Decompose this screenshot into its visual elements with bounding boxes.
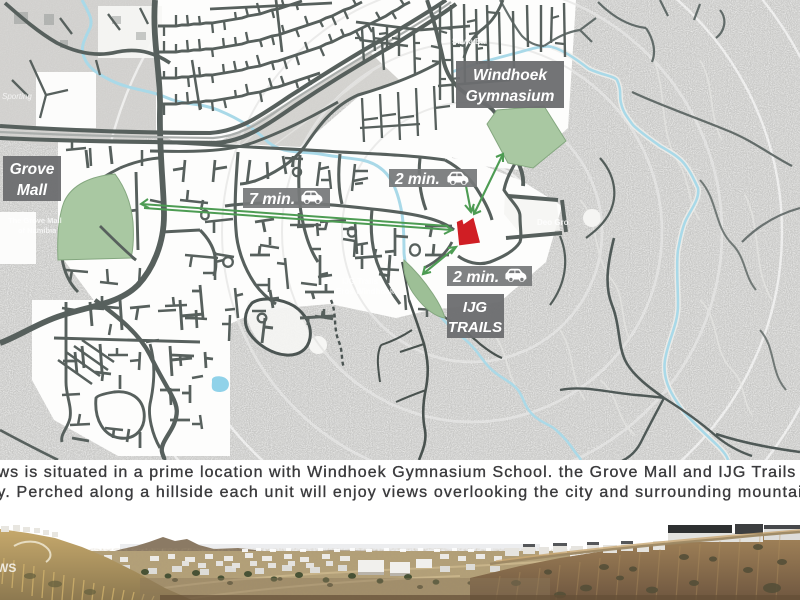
svg-text:Eros Windhoek: Eros Windhoek: [336, 287, 395, 296]
svg-text:Gymnasium: Gymnasium: [466, 88, 555, 105]
svg-text:Silvia Ea: Silvia Ea: [452, 37, 485, 46]
svg-text:of Namibia: of Namibia: [18, 226, 57, 235]
svg-text:Deo Gro: Deo Gro: [537, 218, 569, 227]
svg-text:The Grove Mall: The Grove Mall: [8, 216, 62, 225]
svg-text:Grove: Grove: [10, 161, 55, 178]
svg-text:2 min.: 2 min.: [394, 171, 440, 188]
svg-text:TRAILS: TRAILS: [448, 319, 502, 336]
svg-text:Windhoek: Windhoek: [473, 67, 548, 84]
svg-text:IJG: IJG: [463, 299, 488, 316]
svg-text:7 min.: 7 min.: [249, 191, 295, 208]
svg-text:2 min.: 2 min.: [452, 269, 499, 286]
svg-text:WS: WS: [0, 561, 16, 575]
svg-text:IJG Trails: IJG Trails: [342, 277, 379, 286]
svg-text:Sporting: Sporting: [2, 92, 32, 101]
svg-text:Mall: Mall: [17, 182, 48, 199]
